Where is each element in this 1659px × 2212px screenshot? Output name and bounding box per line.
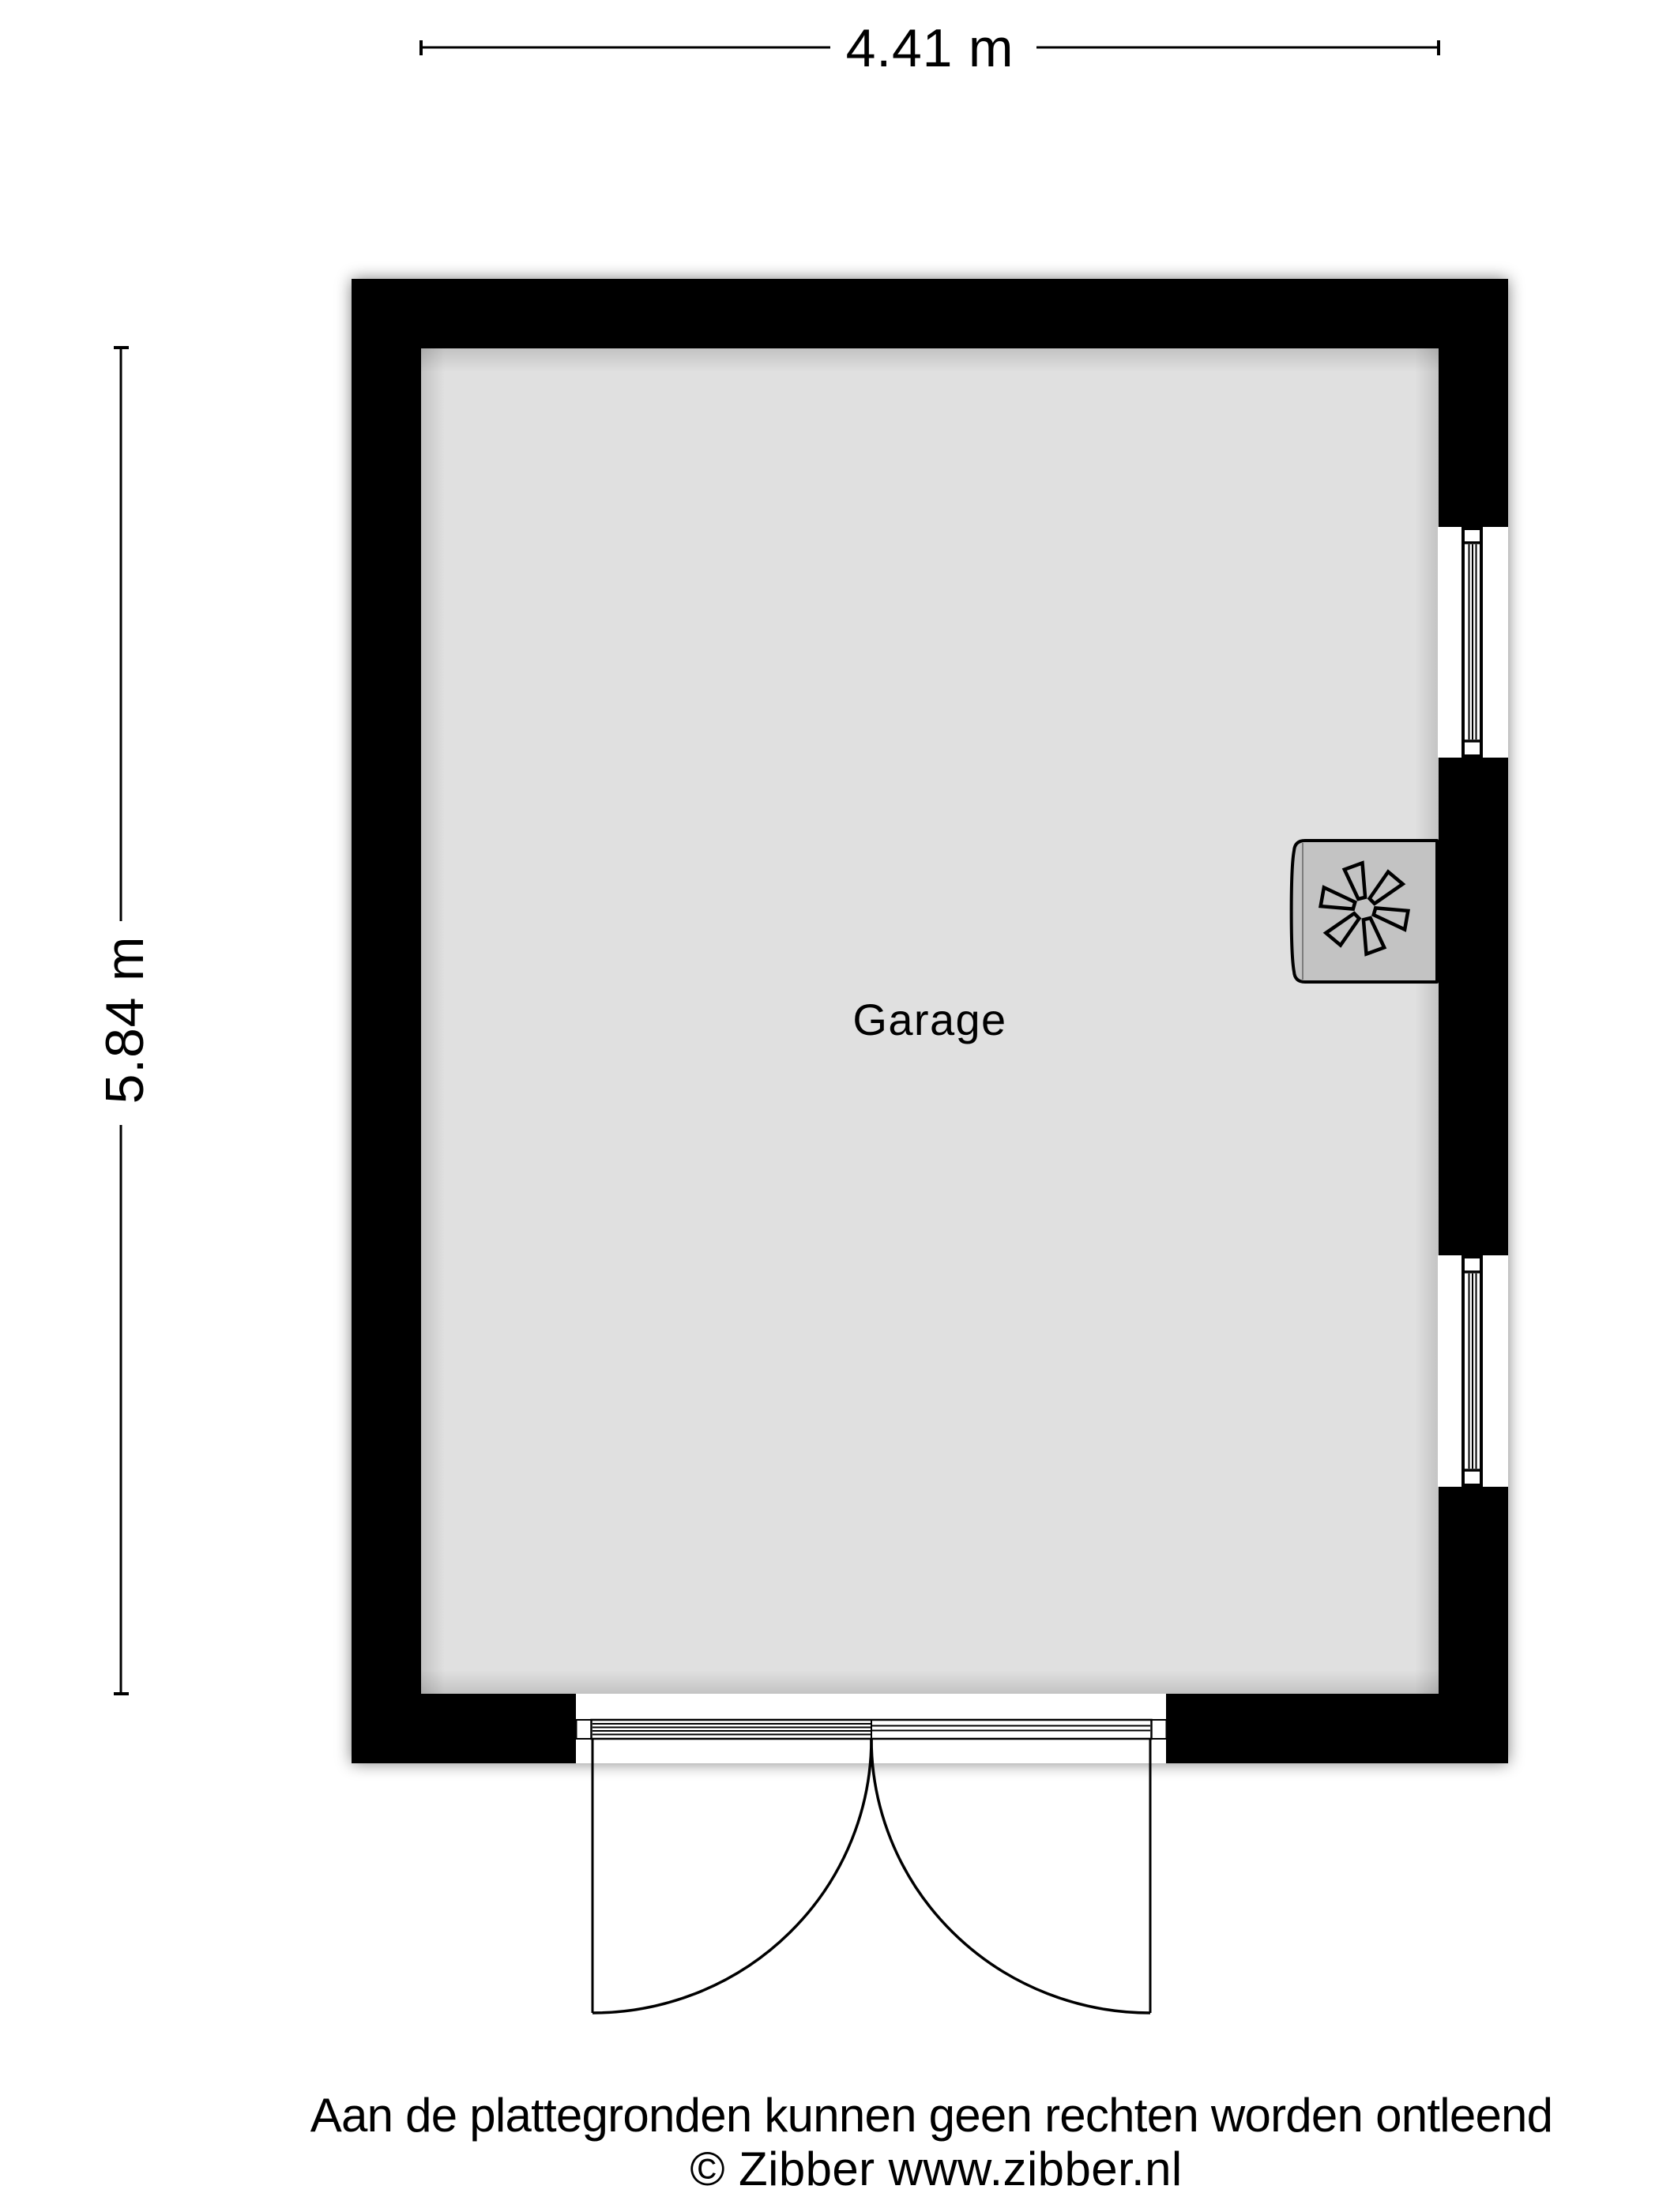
svg-text:5.84 m: 5.84 m (95, 936, 155, 1104)
svg-text:Aan de plattegronden kunnen ge: Aan de plattegronden kunnen geen rechten… (310, 2089, 1553, 2142)
svg-text:4.41 m: 4.41 m (846, 18, 1014, 78)
svg-text:Garage: Garage (852, 995, 1006, 1044)
svg-text:© Zibber www.zibber.nl: © Zibber www.zibber.nl (690, 2142, 1182, 2195)
